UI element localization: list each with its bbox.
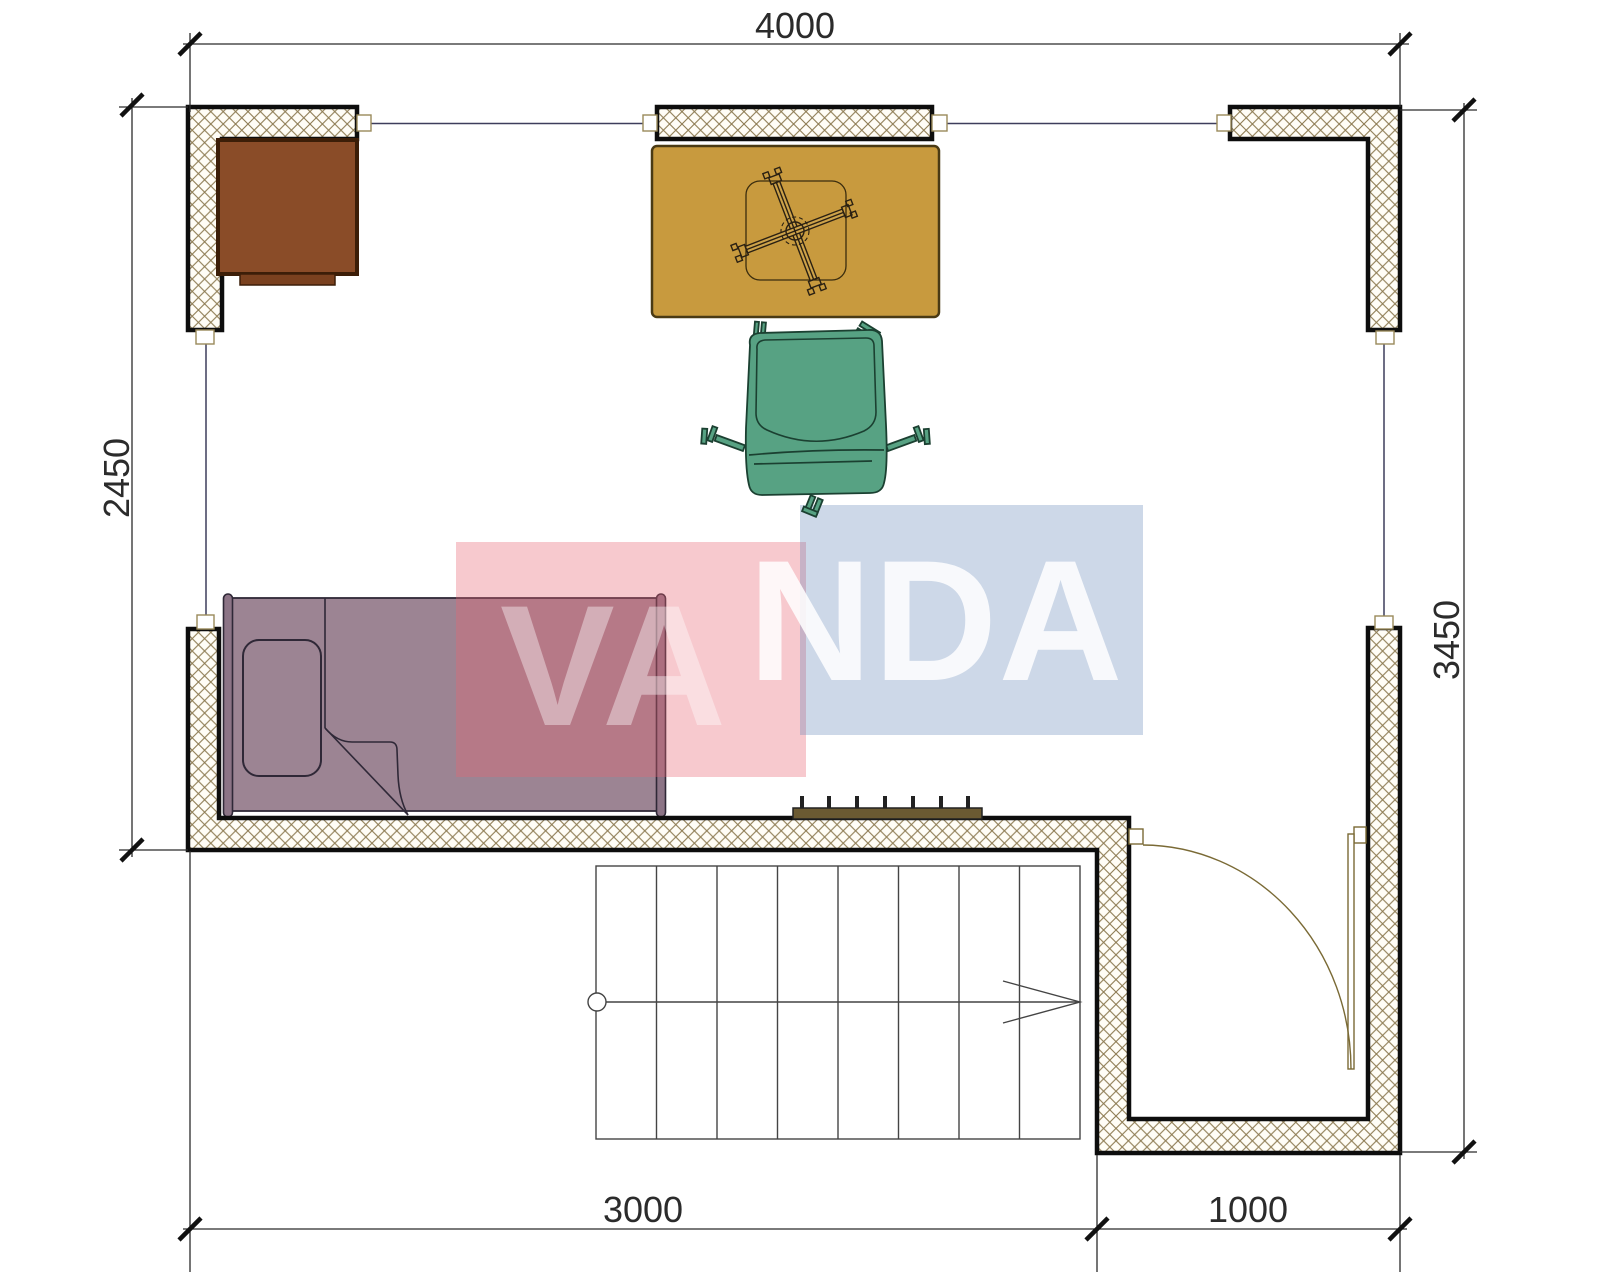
svg-text:4000: 4000	[755, 5, 835, 46]
svg-text:VA: VA	[500, 570, 726, 762]
svg-text:1000: 1000	[1208, 1189, 1288, 1230]
svg-text:3450: 3450	[1426, 600, 1467, 680]
svg-text:3000: 3000	[603, 1189, 683, 1230]
svg-text:2450: 2450	[96, 438, 137, 518]
svg-text:NDA: NDA	[748, 525, 1124, 717]
